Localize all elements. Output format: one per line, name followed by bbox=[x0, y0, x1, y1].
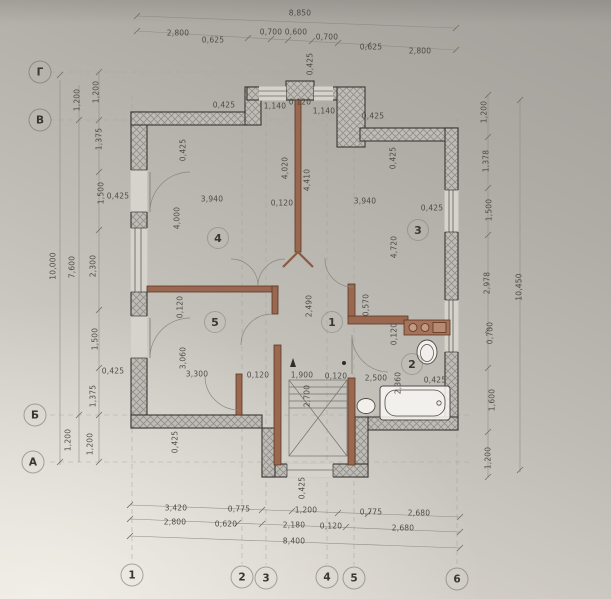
sink bbox=[357, 399, 375, 414]
photo-background: 8,8502,8000,6250,7000,6000,7000,6252,800… bbox=[0, 0, 611, 599]
staircase bbox=[289, 380, 347, 456]
floor-plan: 8,8502,8000,6250,7000,6000,7000,6252,800… bbox=[0, 0, 611, 599]
bathroom-fixtures bbox=[357, 320, 450, 420]
toilet bbox=[417, 340, 437, 364]
door-leaves bbox=[283, 252, 313, 267]
floor-plan-drawing bbox=[0, 0, 611, 599]
stair-direction-markers bbox=[290, 358, 346, 367]
bathtub bbox=[380, 386, 450, 420]
vanity-counter bbox=[404, 320, 450, 335]
